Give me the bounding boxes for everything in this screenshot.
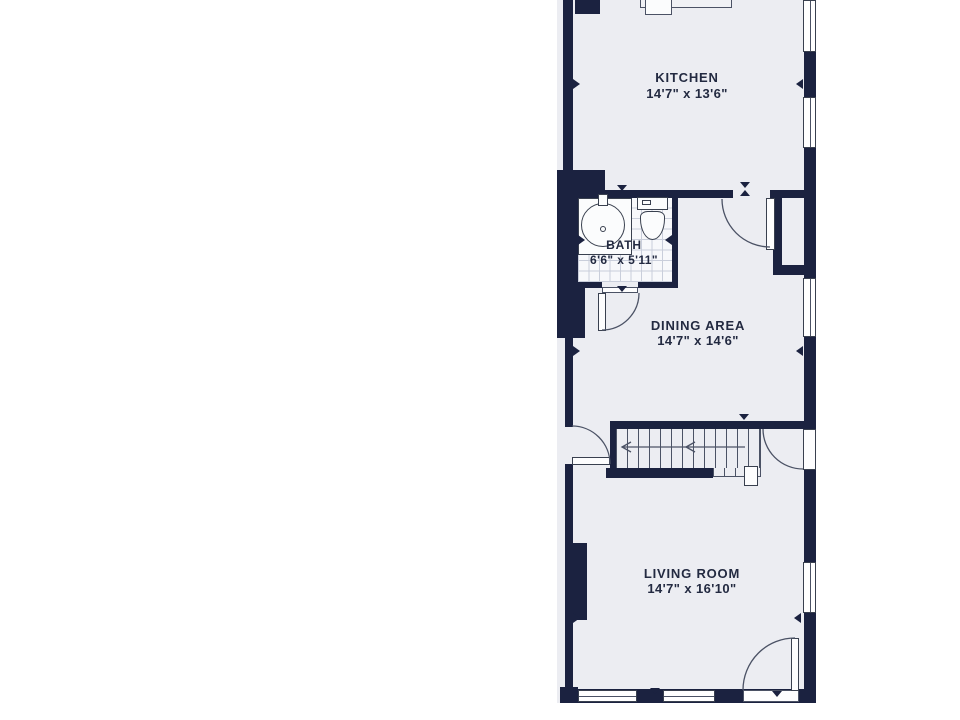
- tick-kitchen-left: [573, 79, 580, 89]
- dining-label: DINING AREA: [651, 318, 745, 333]
- kitchen-dims: 14'7" x 13'6": [646, 86, 728, 101]
- tick-dining-left: [573, 346, 580, 356]
- tick-dining-right: [796, 346, 803, 356]
- tick-front-door: [772, 691, 782, 697]
- tick-kitchen-right: [796, 79, 803, 89]
- tick-living-left: [573, 613, 580, 623]
- tick-kitchen-opening-bottom: [740, 190, 750, 196]
- tick-bath-left: [578, 235, 585, 245]
- plan-linework: [0, 0, 960, 720]
- living-dims: 14'7" x 16'10": [647, 581, 736, 596]
- tick-stairwall-top: [739, 414, 749, 420]
- tick-stairwall-bottom: [739, 422, 749, 428]
- dining-dims: 14'7" x 14'6": [657, 333, 739, 348]
- tick-living-right: [794, 613, 801, 623]
- tick-hall-door: [774, 422, 784, 428]
- tick-bath-right: [665, 235, 672, 245]
- floor-plan: KITCHEN 14'7" x 13'6" BATH 6'6" x 5'11" …: [0, 0, 960, 720]
- tick-bath-door: [617, 286, 627, 292]
- bath-door-arc: [602, 293, 639, 330]
- tick-bath-top: [617, 185, 627, 191]
- bath-dims: 6'6" x 5'11": [590, 253, 658, 267]
- side-door-arc: [572, 426, 610, 464]
- kitchen-door-arc: [722, 199, 770, 247]
- kitchen-label: KITCHEN: [655, 70, 718, 85]
- tick-kitchen-opening-top: [740, 182, 750, 188]
- living-label: LIVING ROOM: [644, 566, 740, 581]
- tick-bottom-wall: [650, 688, 660, 694]
- front-door-arc: [743, 638, 795, 690]
- bath-label: BATH: [606, 238, 642, 252]
- hall-door-arc: [763, 429, 803, 469]
